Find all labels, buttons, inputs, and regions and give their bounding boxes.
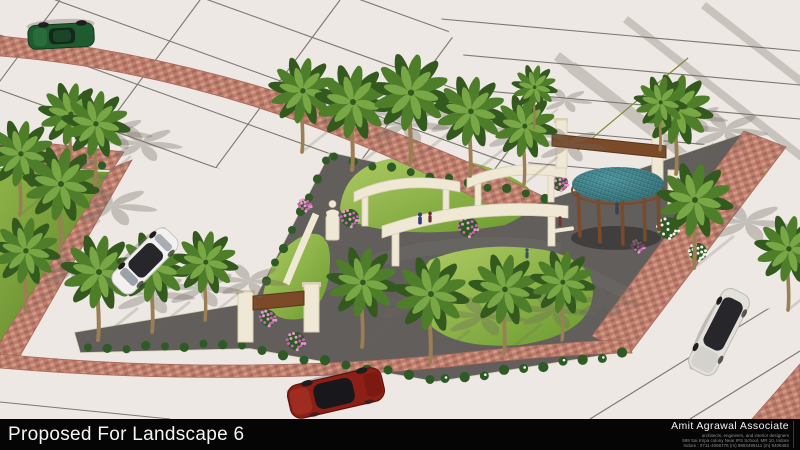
hedge-bush [238, 342, 246, 350]
white-flower [602, 356, 605, 359]
hedge-bush [384, 366, 393, 375]
hedge-bush [200, 340, 208, 348]
hedge-bush [103, 344, 112, 353]
hedge-bush [279, 244, 288, 253]
company-name: Amit Agrawal Associate [671, 421, 789, 432]
person [558, 216, 561, 226]
landscape-render [0, 0, 800, 419]
title-bar: Proposed For Landscape 6 Amit Agrawal As… [0, 419, 800, 450]
hedge-bush [300, 356, 309, 365]
hedge-bush [483, 184, 491, 192]
person [525, 248, 528, 258]
hedge-bush [123, 345, 131, 353]
car-green [26, 17, 95, 50]
hedge-bush [407, 168, 415, 176]
white-flower [445, 376, 448, 379]
hedge-bush [480, 371, 489, 380]
hedge-bush [313, 174, 322, 183]
gazebo-floor-shadow [571, 226, 661, 250]
hedge-bush [578, 355, 588, 365]
proposal-title: Proposed For Landscape 6 [8, 424, 244, 446]
hedge-bush [161, 343, 169, 351]
hedge-bush [342, 361, 351, 370]
hedge-bush [288, 226, 296, 234]
hedge-bush [141, 341, 150, 350]
render-viewport: Proposed For Landscape 6 Amit Agrawal As… [0, 0, 800, 450]
hedge-bush [84, 344, 92, 352]
hedge-bush [460, 372, 470, 382]
hedge-bush [499, 365, 509, 375]
white-flower [563, 359, 566, 362]
hedge-bush [441, 374, 450, 383]
hedge-bush [258, 346, 267, 355]
hedge-bush [180, 343, 189, 352]
hedge-bush [404, 370, 414, 380]
hedge-bush [218, 340, 227, 349]
hedge-bush [559, 357, 568, 366]
hedge-bush [522, 189, 530, 197]
company-contact: Indore : 0711-4056776 (m) 9893499111 (m)… [671, 443, 789, 448]
hedge-bush [98, 161, 106, 169]
person [428, 212, 432, 223]
hedge-bush [617, 347, 627, 357]
hedge-bush [271, 259, 279, 267]
hedge-bush [538, 362, 548, 372]
hedge-bush [502, 184, 511, 193]
white-flower [523, 366, 526, 369]
white-flower [484, 373, 487, 376]
hedge-bush [322, 157, 330, 165]
hedge-bush [426, 375, 435, 384]
gazebo-dome-grid [572, 167, 664, 201]
hedge-bush [519, 364, 528, 373]
person [615, 203, 619, 215]
person [418, 213, 422, 225]
hedge-bush [330, 153, 338, 161]
hedge-bush [368, 163, 376, 171]
hedge-bush [278, 350, 288, 360]
hedge-bush [320, 355, 330, 365]
company-block: Amit Agrawal Associate architects, engin… [671, 421, 794, 448]
hedge-bush [598, 354, 607, 363]
hedge-bush [387, 163, 396, 172]
